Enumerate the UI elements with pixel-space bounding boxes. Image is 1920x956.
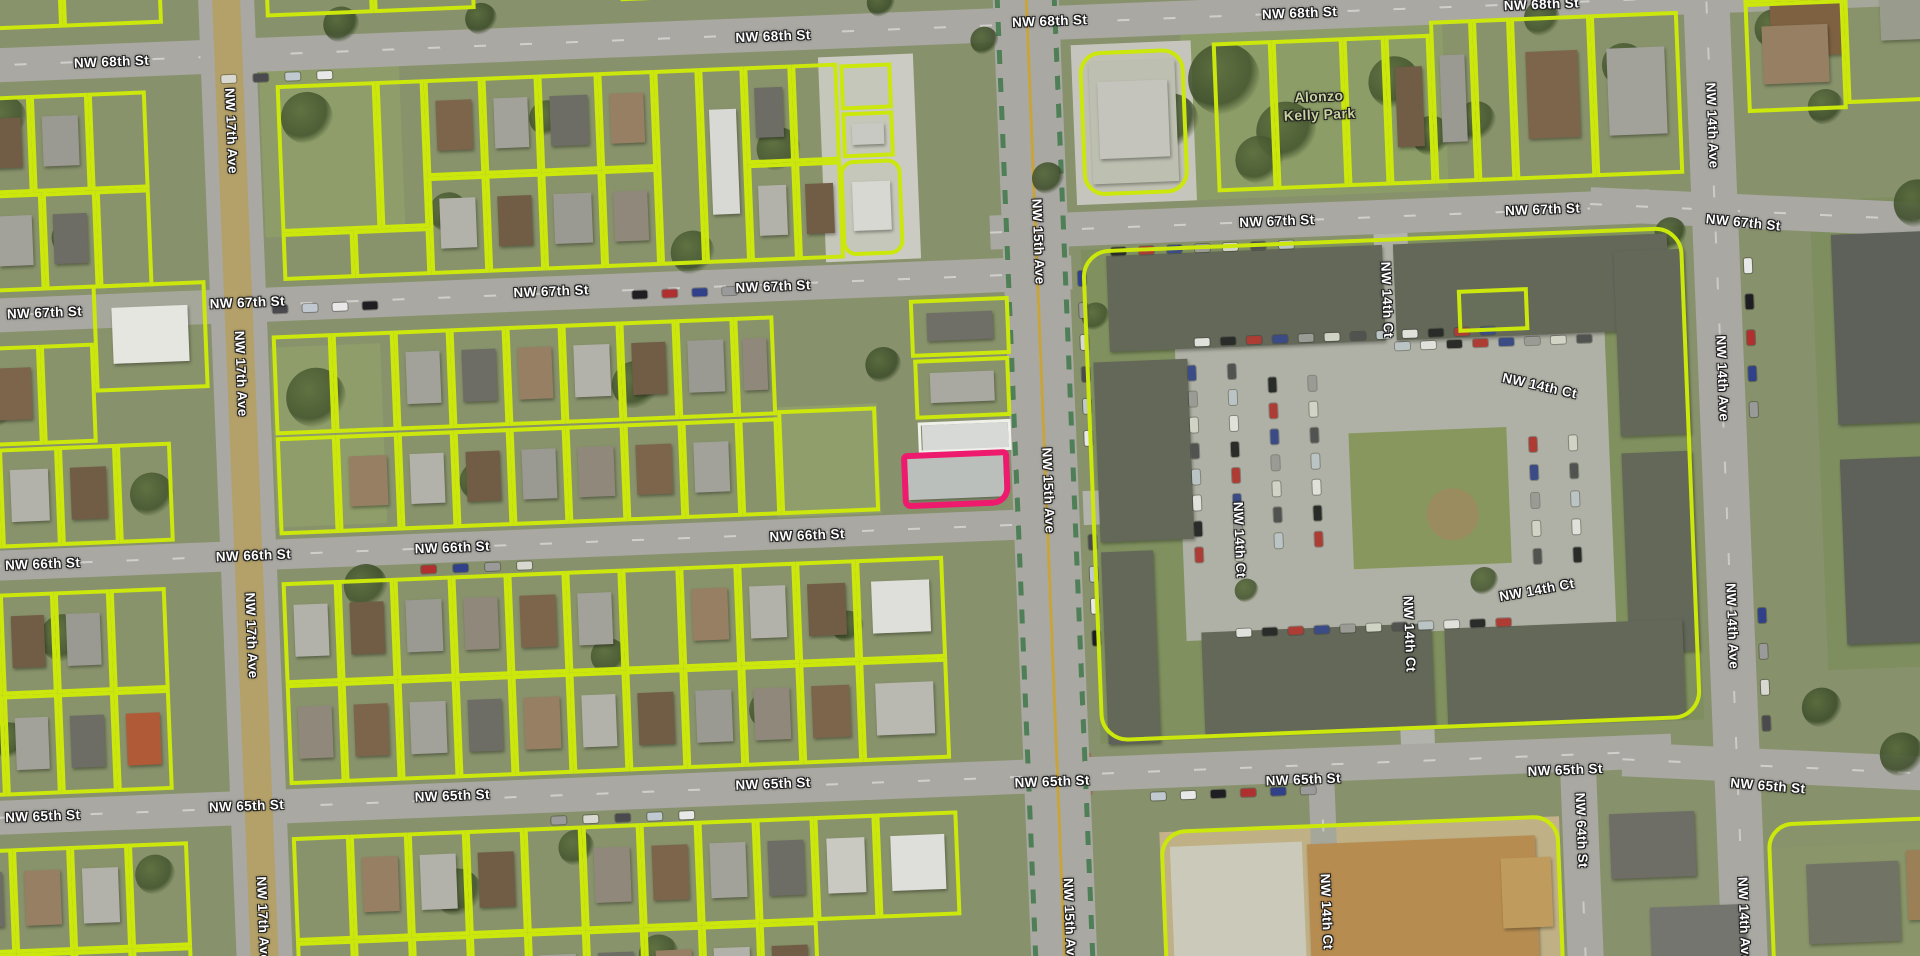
street-label-nw-14th-ct: NW 14th Ct: [1231, 502, 1249, 579]
house-roof: [693, 441, 730, 493]
street-label-nw-67th-st: NW 67th St: [1239, 212, 1315, 230]
parcel-boundary: [698, 66, 751, 264]
building: [1650, 904, 1748, 956]
parked-car: [517, 561, 532, 570]
street-label-nw-64th-st: NW 64th St: [1573, 792, 1591, 868]
house-roof: [353, 703, 390, 756]
building: [1831, 230, 1920, 425]
parcel-boundary: [1078, 48, 1190, 197]
house-roof: [805, 183, 834, 234]
parked-car: [453, 564, 468, 573]
parcel-boundary: [640, 821, 702, 928]
house-roof: [577, 446, 615, 498]
parcel-boundary: [619, 319, 679, 421]
street-label-nw-14th-ct: NW 14th Ct: [1318, 873, 1336, 950]
house-roof: [613, 190, 650, 242]
parked-car: [615, 814, 630, 823]
tree-canopy: [1801, 687, 1843, 729]
street-label-nw-65th-st: NW 65th St: [1265, 770, 1341, 788]
parcel-boundary: [423, 77, 485, 177]
house-roof: [758, 185, 789, 237]
house-roof: [577, 592, 614, 646]
house-roof: [24, 870, 62, 926]
parcel-boundary: [875, 810, 961, 918]
house-roof: [1525, 50, 1580, 139]
street-label-nw-68th-st: NW 68th St: [735, 27, 811, 45]
house-roof: [1097, 80, 1171, 159]
house-roof: [852, 122, 884, 145]
parcel-boundary: [408, 830, 470, 937]
parked-car: [551, 816, 566, 825]
parcel-boundary: [738, 417, 781, 516]
parcel-boundary: [681, 419, 742, 519]
parked-car: [302, 304, 317, 313]
house-roof: [521, 448, 558, 500]
parked-car: [1744, 258, 1753, 273]
parked-car: [1241, 788, 1256, 797]
parcel-boundary: [354, 937, 416, 956]
house-roof: [405, 351, 442, 404]
house-roof: [0, 872, 4, 928]
map-viewport[interactable]: NW 68th StNW 68th StNW 68th StNW 68th St…: [0, 0, 1920, 956]
house-roof: [754, 87, 785, 139]
parked-car: [1750, 402, 1759, 417]
parcel-boundary: [913, 356, 1011, 420]
house-roof: [348, 455, 389, 507]
house-roof: [651, 845, 689, 901]
parcel-boundary: [427, 175, 489, 275]
parked-car: [662, 289, 677, 298]
parcel-boundary: [263, 0, 373, 17]
parked-car: [1745, 294, 1754, 309]
house-roof: [293, 603, 330, 657]
house-roof: [0, 215, 34, 267]
house-roof: [930, 371, 994, 403]
street-label-nw-66th-st: NW 66th St: [216, 546, 292, 564]
parcel-boundary: [1839, 0, 1920, 104]
parcel-boundary: [394, 328, 454, 430]
house-roof: [767, 840, 805, 896]
parcel-boundary: [393, 575, 455, 679]
parcel-boundary: [91, 280, 209, 392]
parcel-boundary: [565, 569, 625, 673]
parcel-boundary: [1159, 814, 1566, 956]
street-label-nw-14th-ct: NW 14th Ct: [1401, 596, 1419, 673]
house-roof: [493, 97, 530, 149]
parked-car: [1759, 644, 1768, 659]
parcel-boundary: [296, 940, 358, 956]
parked-car: [692, 288, 707, 297]
house-roof: [463, 596, 500, 650]
parcel-boundary: [644, 926, 706, 956]
parcel-boundary: [350, 832, 412, 939]
house-roof: [439, 197, 477, 249]
house-roof: [749, 585, 787, 639]
house-roof: [656, 950, 694, 956]
house-roof: [1395, 67, 1425, 148]
street-label-nw-67th-st: NW 67th St: [735, 277, 811, 295]
parked-car: [632, 290, 647, 299]
parcel-boundary: [795, 161, 845, 261]
parcel-boundary: [481, 75, 541, 175]
highlighted-parcel[interactable]: [901, 449, 1011, 509]
house-roof: [111, 305, 189, 364]
parcel-boundary: [128, 841, 192, 948]
house-roof: [826, 838, 867, 894]
parcel-boundary: [813, 814, 879, 921]
house-roof: [362, 856, 400, 912]
house-roof: [687, 340, 725, 393]
parcel-boundary: [653, 68, 706, 266]
house-roof: [581, 694, 618, 747]
parked-car: [421, 565, 436, 574]
house-roof: [709, 842, 747, 898]
parcel-boundary: [675, 317, 737, 419]
parcel-boundary: [561, 322, 623, 424]
parcel-boundary: [74, 949, 136, 956]
parcel-boundary: [412, 935, 474, 956]
parked-car: [332, 302, 347, 311]
parcel-boundary: [1510, 14, 1596, 180]
house-roof: [1606, 46, 1667, 135]
parcel-boundary: [621, 566, 683, 670]
parcel-boundary: [450, 326, 510, 428]
parcel-boundary: [292, 835, 354, 942]
parcel-boundary: [454, 428, 514, 528]
parcel-boundary: [96, 188, 154, 288]
parcel-boundary: [1212, 40, 1278, 192]
parcel-boundary: [40, 343, 98, 445]
house-roof: [573, 344, 611, 397]
aerial-imagery-layer: NW 68th StNW 68th StNW 68th StNW 68th St…: [0, 0, 1920, 956]
parcel-boundary: [569, 671, 629, 774]
parcel-boundary: [58, 691, 118, 794]
house-roof: [405, 599, 443, 653]
parcel-boundary: [116, 442, 175, 544]
park-label: Alonzo: [1294, 87, 1344, 105]
parcel-boundary: [376, 79, 430, 229]
parcel-boundary: [272, 333, 336, 435]
parcel-boundary: [733, 315, 777, 417]
street-label-nw-67th-st: NW 67th St: [7, 304, 83, 322]
parcel-boundary: [485, 173, 545, 273]
parked-car: [1762, 716, 1771, 731]
street-label-nw-67th-st: NW 67th St: [1505, 200, 1581, 218]
house-roof: [467, 698, 504, 751]
parked-car: [253, 73, 268, 82]
house-roof: [53, 213, 88, 265]
parcel-boundary: [12, 846, 74, 953]
parcel-boundary: [683, 666, 745, 769]
parcel-boundary: [566, 423, 628, 523]
parcel-boundary: [1743, 0, 1847, 113]
house-roof: [65, 612, 102, 666]
house-roof: [891, 834, 946, 890]
parcel-boundary: [1766, 814, 1920, 956]
house-roof: [70, 467, 108, 520]
parked-car: [583, 815, 598, 824]
parcel-boundary: [702, 923, 764, 956]
building: [1840, 455, 1920, 645]
parcel-boundary: [0, 193, 46, 293]
house-roof: [695, 689, 733, 742]
house-roof: [635, 444, 673, 496]
parked-car: [317, 71, 332, 80]
parcel-boundary: [1457, 287, 1530, 333]
parcel-boundary: [398, 430, 458, 530]
house-roof: [753, 687, 791, 740]
parcel-boundary: [859, 658, 951, 762]
house-roof: [691, 587, 729, 641]
parcel-boundary: [791, 63, 841, 163]
parcel-boundary: [510, 426, 570, 526]
house-roof: [69, 714, 106, 767]
parcel-boundary: [114, 689, 174, 792]
parked-car: [1301, 786, 1316, 795]
house-roof: [125, 712, 162, 765]
parcel-boundary: [528, 930, 590, 956]
parcel-boundary: [466, 828, 528, 935]
house-roof: [631, 342, 668, 395]
house-roof: [14, 716, 50, 769]
street-label-nw-67th-st: NW 67th St: [513, 282, 589, 300]
parcel-boundary: [839, 158, 905, 256]
tree-canopy: [865, 346, 902, 383]
parked-car: [1761, 680, 1770, 695]
parcel-boundary: [451, 573, 511, 677]
parcel-boundary: [839, 62, 893, 110]
parcel-boundary: [276, 435, 340, 535]
street-label-nw-66th-st: NW 66th St: [769, 526, 845, 544]
parked-car: [485, 563, 500, 572]
parcel-boundary: [855, 556, 947, 661]
parcel-boundary: [511, 673, 573, 776]
parcel-boundary: [582, 823, 644, 930]
street-label-nw-14th-ct: NW 14th Ct: [1378, 261, 1396, 338]
house-roof: [714, 947, 752, 956]
parcel-boundary: [0, 591, 58, 695]
parked-car: [1747, 330, 1756, 345]
parked-car: [1211, 790, 1226, 799]
parcel-boundary: [338, 578, 398, 682]
parcel-boundary: [597, 70, 657, 170]
house-roof: [465, 450, 502, 502]
parcel-boundary: [336, 433, 402, 533]
parked-car: [1271, 787, 1286, 796]
parcel-boundary: [342, 680, 402, 783]
parcel-boundary: [353, 227, 431, 278]
parcel-boundary: [841, 110, 895, 158]
parcel-boundary: [618, 0, 738, 1]
street-label-nw-68th-st: NW 68th St: [1012, 12, 1088, 30]
street-label-nw-65th-st: NW 65th St: [209, 797, 285, 815]
street-label-nw-68th-st: NW 68th St: [1262, 4, 1338, 22]
parcel-boundary: [30, 93, 92, 193]
white-parcel-boundary: [918, 419, 1012, 454]
street-label-nw-65th-st: NW 65th St: [5, 807, 81, 825]
house-roof: [519, 594, 557, 648]
street-label-nw-68th-st: NW 68th St: [74, 53, 150, 71]
parcel-boundary: [537, 72, 601, 172]
house-roof: [497, 195, 534, 247]
parked-car: [1181, 791, 1196, 800]
house-roof: [517, 347, 554, 400]
house-roof: [0, 368, 32, 421]
parcel-boundary: [1429, 19, 1479, 184]
parcel-boundary: [625, 668, 687, 771]
parcel-boundary: [282, 580, 342, 684]
parcel-boundary: [524, 825, 586, 932]
parcel-boundary: [697, 818, 759, 925]
parcel-boundary: [777, 406, 880, 515]
parcel-boundary: [132, 946, 196, 956]
house-roof: [807, 583, 847, 637]
parked-car: [1748, 366, 1757, 381]
house-roof: [42, 115, 80, 167]
parcel-boundary: [743, 64, 795, 164]
parked-car: [221, 75, 236, 84]
parcel-boundary: [623, 421, 685, 521]
parked-car: [1151, 792, 1166, 801]
parked-car: [285, 72, 300, 81]
house-roof: [82, 867, 120, 923]
parcel-boundary: [760, 921, 822, 956]
house-roof: [409, 700, 447, 753]
house-roof: [10, 615, 46, 669]
parcel-boundary: [1385, 34, 1436, 186]
house-roof: [1439, 54, 1468, 142]
house-roof: [1761, 24, 1829, 84]
street-label-nw-65th-st: NW 65th St: [735, 775, 811, 793]
parcel-boundary: [398, 677, 460, 780]
parcel-boundary: [909, 296, 1011, 358]
parcel-boundary: [741, 664, 803, 767]
street-label-nw-65th-st: NW 65th St: [1014, 773, 1090, 791]
parcel-boundary: [371, 0, 475, 13]
house-roof: [743, 338, 768, 390]
parcel-boundary: [755, 816, 817, 923]
parcel-boundary: [110, 587, 170, 691]
parcel-boundary: [586, 928, 648, 956]
parcel-boundary: [70, 844, 132, 951]
house-roof: [461, 349, 498, 402]
parcel-boundary: [0, 95, 34, 195]
house-roof: [349, 601, 386, 655]
house-roof: [875, 681, 935, 735]
house-roof: [297, 705, 334, 758]
house-roof: [637, 691, 675, 744]
house-roof: [593, 847, 631, 903]
parcel-boundary: [0, 345, 44, 447]
parcel-boundary: [58, 444, 120, 546]
parcel-boundary: [88, 90, 150, 190]
house-roof: [871, 579, 931, 634]
parcel-boundary: [1590, 11, 1684, 177]
house-roof: [435, 99, 473, 151]
parcel-boundary: [42, 190, 100, 290]
house-roof: [550, 95, 589, 147]
house-roof: [772, 945, 810, 956]
parcel-boundary: [61, 0, 163, 28]
parked-car: [1758, 608, 1767, 623]
house-roof: [523, 696, 561, 749]
street-label-nw-67th-st: NW 67th St: [209, 293, 285, 311]
parcel-boundary: [737, 562, 799, 666]
parcel-boundary: [282, 230, 356, 281]
parcel-boundary: [276, 81, 382, 233]
parcel-boundary: [507, 571, 569, 675]
house-roof: [598, 952, 636, 956]
street-label-nw-66th-st: NW 66th St: [5, 555, 81, 573]
parcel-boundary: [1472, 18, 1517, 182]
parcel-boundary: [0, 0, 63, 32]
parked-car: [362, 301, 377, 310]
house-roof: [10, 469, 49, 522]
parcel-boundary: [799, 661, 863, 764]
house-roof: [478, 852, 516, 908]
house-roof: [811, 684, 850, 738]
park-label: Kelly Park: [1283, 105, 1355, 124]
house-roof: [553, 193, 592, 245]
parcel-boundary: [747, 162, 799, 262]
parcel-boundary: [286, 682, 346, 785]
parked-car: [647, 812, 662, 821]
parcel-boundary: [332, 331, 398, 433]
house-roof: [420, 854, 458, 910]
house-roof: [409, 453, 446, 505]
parcel-boundary: [541, 170, 605, 270]
parcel-boundary: [601, 168, 661, 268]
house-roof: [609, 92, 646, 144]
house-roof: [709, 108, 740, 214]
parcel-boundary: [0, 446, 62, 548]
parcel-boundary: [470, 933, 532, 956]
building: [1609, 811, 1697, 879]
parcel-boundary: [3, 693, 62, 796]
house-roof: [0, 117, 23, 169]
parcel-boundary: [54, 589, 114, 693]
street-label-nw-65th-st: NW 65th St: [1527, 761, 1603, 779]
parcel-boundary: [456, 675, 516, 778]
parcel-boundary: [795, 559, 859, 663]
parked-car: [679, 811, 694, 820]
parcel-boundary: [679, 564, 741, 668]
street-label-nw-66th-st: NW 66th St: [414, 538, 490, 556]
house-roof: [851, 180, 892, 231]
parcel-boundary: [505, 324, 565, 426]
street-label-nw-65th-st: NW 65th St: [414, 787, 490, 805]
house-roof: [926, 311, 993, 342]
